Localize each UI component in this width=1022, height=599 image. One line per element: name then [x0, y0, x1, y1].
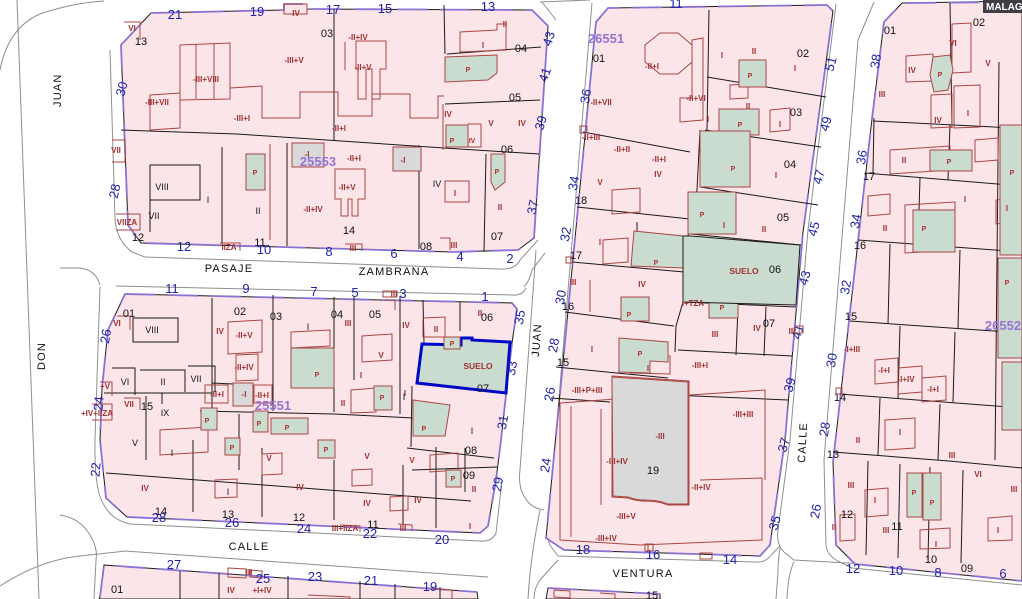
svg-text:8: 8 [325, 244, 332, 259]
svg-text:28: 28 [152, 510, 166, 525]
svg-text:-II+V: -II+V [235, 331, 253, 340]
svg-text:I: I [775, 171, 777, 180]
svg-text:19: 19 [250, 4, 264, 19]
svg-text:04: 04 [515, 43, 527, 55]
svg-text:P: P [947, 159, 952, 166]
svg-text:III: III [879, 90, 886, 99]
svg-text:II: II [478, 309, 482, 318]
svg-text:I: I [360, 371, 362, 380]
svg-text:IV: IV [296, 483, 304, 492]
svg-text:2: 2 [506, 251, 513, 266]
svg-text:V: V [132, 438, 138, 448]
svg-text:JUAN: JUAN [530, 323, 544, 357]
svg-text:11: 11 [891, 521, 902, 533]
svg-text:+V: +V [100, 382, 111, 391]
svg-text:SUELO: SUELO [463, 361, 493, 371]
svg-text:IV: IV [402, 321, 410, 330]
svg-text:I: I [794, 64, 796, 73]
svg-text:-II+I: -II+I [652, 155, 666, 164]
svg-text:07: 07 [477, 383, 489, 395]
svg-text:-III: -III [655, 432, 664, 441]
svg-text:-III+V: -III+V [616, 512, 636, 521]
svg-text:II: II [498, 203, 502, 212]
svg-text:-II+III: -II+III [582, 133, 600, 142]
svg-text:31: 31 [494, 414, 511, 431]
svg-text:VIII: VIII [155, 182, 169, 192]
svg-text:P: P [700, 212, 705, 219]
svg-text:15: 15 [646, 590, 658, 599]
svg-text:IV: IV [414, 496, 422, 505]
svg-text:V: V [985, 59, 991, 68]
svg-text:-I+I: -I+I [878, 366, 890, 375]
svg-text:IV: IV [638, 280, 646, 289]
svg-text:30: 30 [823, 352, 840, 369]
svg-text:P: P [930, 500, 935, 507]
svg-text:P: P [230, 445, 235, 452]
svg-text:1: 1 [481, 289, 488, 304]
svg-text:8: 8 [934, 565, 941, 580]
svg-text:25553: 25553 [300, 154, 336, 169]
svg-text:III: III [848, 481, 855, 490]
svg-text:-II+IV: -II+IV [348, 33, 368, 42]
svg-text:7: 7 [310, 284, 317, 299]
svg-text:33: 33 [503, 360, 520, 377]
svg-text:I: I [171, 448, 174, 458]
svg-text:I: I [227, 487, 230, 497]
svg-text:32: 32 [557, 226, 574, 243]
svg-text:25: 25 [256, 571, 270, 586]
svg-text:02: 02 [797, 48, 809, 60]
svg-text:SUELO: SUELO [729, 266, 759, 276]
svg-text:22: 22 [87, 462, 103, 478]
svg-text:-II+II: -II+II [614, 145, 630, 154]
svg-text:01: 01 [111, 584, 123, 596]
svg-text:IIZA: IIZA [221, 243, 236, 252]
svg-text:P: P [1005, 280, 1010, 287]
svg-text:P: P [720, 305, 725, 312]
svg-text:P: P [638, 351, 643, 358]
svg-text:16: 16 [854, 240, 866, 252]
svg-text:I: I [471, 426, 474, 436]
svg-text:27: 27 [167, 557, 181, 572]
svg-text:15: 15 [378, 1, 392, 16]
svg-text:13: 13 [481, 0, 495, 14]
svg-text:4: 4 [456, 249, 463, 264]
svg-text:18: 18 [575, 195, 587, 207]
svg-text:02: 02 [973, 17, 985, 29]
svg-text:P: P [315, 372, 320, 379]
svg-text:24: 24 [90, 396, 106, 412]
svg-text:MALAGA: MALAGA [986, 2, 1022, 13]
svg-text:P: P [748, 73, 753, 80]
svg-text:26552: 26552 [985, 318, 1021, 333]
svg-text:38: 38 [867, 53, 884, 70]
svg-text:24: 24 [537, 457, 554, 474]
svg-text:I: I [997, 526, 999, 535]
svg-text:VIII: VIII [145, 325, 159, 335]
svg-text:I: I [454, 189, 456, 198]
svg-text:09: 09 [961, 563, 973, 575]
svg-text:-III+P+III: -III+P+III [572, 386, 603, 395]
svg-text:29: 29 [489, 476, 506, 493]
svg-text:5: 5 [351, 285, 358, 300]
svg-text:-II+I: -II+I [332, 124, 346, 133]
svg-text:VI: VI [121, 377, 130, 387]
svg-text:VII: VII [111, 146, 121, 155]
svg-text:14: 14 [343, 225, 355, 237]
svg-text:P: P [922, 226, 927, 233]
svg-text:P: P [1010, 170, 1015, 177]
svg-text:P: P [495, 169, 500, 176]
svg-text:P: P [205, 418, 210, 425]
svg-text:II: II [160, 377, 165, 387]
svg-text:15: 15 [557, 357, 569, 369]
svg-text:-II+I: -II+I [347, 154, 361, 163]
svg-text:-I: -I [401, 156, 406, 165]
svg-text:36: 36 [853, 149, 870, 166]
svg-text:ZAMBRANA: ZAMBRANA [359, 266, 430, 278]
svg-text:34: 34 [565, 175, 582, 192]
svg-text:I: I [874, 496, 876, 505]
svg-text:P: P [253, 170, 258, 177]
svg-text:-II+V: -II+V [354, 63, 372, 72]
svg-text:-II+I: -II+I [210, 390, 224, 399]
svg-text:12: 12 [132, 232, 144, 244]
svg-text:II: II [746, 102, 750, 111]
svg-text:I: I [935, 540, 937, 549]
svg-text:P: P [450, 341, 455, 348]
svg-text:06: 06 [769, 264, 781, 276]
svg-text:III: III [345, 319, 352, 328]
svg-text:I: I [779, 120, 781, 129]
svg-text:I: I [404, 389, 406, 398]
svg-text:6: 6 [390, 246, 397, 261]
svg-text:6: 6 [999, 566, 1006, 581]
svg-text:06: 06 [481, 312, 493, 324]
svg-text:07: 07 [763, 318, 775, 330]
svg-text:26: 26 [541, 386, 558, 403]
svg-text:VI: VI [113, 319, 121, 328]
svg-text:26: 26 [97, 328, 114, 345]
svg-text:III: III [350, 244, 357, 253]
svg-text:10: 10 [889, 563, 903, 578]
svg-text:III: III [712, 330, 719, 339]
svg-text:P: P [422, 426, 427, 433]
svg-text:P: P [654, 260, 659, 267]
svg-text:32: 32 [837, 279, 854, 296]
svg-text:IV: IV [141, 484, 149, 493]
svg-text:III: III [949, 451, 956, 460]
svg-text:21: 21 [168, 7, 182, 22]
svg-text:15: 15 [141, 401, 153, 413]
svg-text:-III+I: -III+I [234, 114, 250, 123]
svg-text:IV: IV [753, 324, 761, 333]
svg-text:V: V [488, 119, 494, 128]
svg-text:-III+VIII: -III+VIII [193, 75, 219, 84]
svg-text:VI: VI [974, 470, 982, 479]
svg-text:12: 12 [177, 239, 191, 254]
svg-text:23: 23 [308, 569, 322, 584]
svg-text:IV: IV [934, 116, 942, 125]
svg-text:22: 22 [363, 526, 377, 541]
svg-text:VIIZA: VIIZA [117, 218, 138, 227]
svg-text:-III+III: -III+III [733, 410, 754, 419]
svg-text:III+IIZA: III+IIZA [332, 524, 359, 533]
svg-text:IV: IV [518, 119, 526, 128]
svg-text:II: II [503, 20, 507, 29]
svg-text:P: P [738, 122, 743, 129]
svg-text:PASAJE: PASAJE [205, 263, 254, 275]
svg-text:IV: IV [469, 138, 476, 145]
svg-text:I: I [599, 238, 601, 247]
svg-text:30: 30 [552, 289, 569, 306]
svg-text:II: II [472, 485, 476, 494]
svg-text:06: 06 [501, 144, 513, 156]
svg-text:I: I [1006, 204, 1008, 213]
svg-text:20: 20 [435, 532, 449, 547]
svg-text:I: I [307, 322, 310, 332]
svg-text:01: 01 [593, 53, 605, 65]
svg-text:17: 17 [326, 2, 340, 17]
svg-text:11: 11 [669, 0, 683, 11]
svg-text:03: 03 [790, 107, 802, 119]
svg-text:14: 14 [723, 552, 737, 567]
svg-text:-II+I: -II+I [645, 62, 659, 71]
svg-text:28: 28 [106, 182, 124, 199]
svg-text:II: II [762, 225, 766, 234]
svg-text:P: P [627, 312, 632, 319]
svg-text:III: III [246, 568, 253, 577]
svg-text:II: II [255, 206, 260, 216]
svg-text:-III+V: -III+V [284, 56, 304, 65]
svg-text:DON: DON [36, 342, 48, 370]
svg-text:26: 26 [225, 515, 239, 530]
svg-text:VII: VII [190, 374, 201, 384]
svg-text:-II+IV: -II+IV [303, 205, 323, 214]
svg-text:19: 19 [423, 579, 437, 594]
svg-text:-I+I: -I+I [927, 385, 939, 394]
svg-text:12: 12 [841, 509, 853, 521]
svg-text:V: V [364, 452, 370, 461]
svg-text:IV: IV [216, 327, 224, 336]
svg-text:01: 01 [123, 308, 135, 320]
svg-text:II: II [883, 224, 887, 233]
svg-text:I+TZA: I+TZA [682, 299, 705, 308]
svg-text:P: P [731, 166, 736, 173]
svg-text:CALLE: CALLE [796, 422, 810, 463]
svg-text:-II+V: -II+V [338, 183, 356, 192]
svg-text:I: I [482, 41, 484, 50]
svg-text:III: III [400, 524, 407, 533]
svg-text:-II+IV: -II+IV [691, 483, 711, 492]
svg-text:05: 05 [509, 92, 521, 104]
svg-text:I: I [899, 428, 901, 437]
svg-text:CALLE: CALLE [229, 541, 270, 553]
svg-text:IV: IV [433, 179, 442, 189]
svg-text:19: 19 [647, 465, 659, 477]
svg-text:II: II [832, 523, 836, 532]
svg-text:P: P [380, 395, 385, 402]
svg-text:P: P [324, 447, 329, 454]
svg-text:I: I [591, 345, 593, 354]
svg-text:II: II [902, 156, 906, 165]
svg-text:17: 17 [863, 171, 875, 183]
svg-text:36: 36 [577, 88, 594, 105]
svg-text:JUAN: JUAN [52, 73, 64, 107]
svg-text:25551: 25551 [255, 398, 291, 413]
svg-text:-II+VI: -II+VI [686, 94, 705, 103]
svg-text:04: 04 [784, 159, 796, 171]
svg-text:VII: VII [148, 211, 159, 221]
svg-text:24: 24 [297, 521, 311, 536]
svg-text:-II+VII: -II+VII [590, 98, 612, 107]
svg-text:15: 15 [845, 311, 857, 323]
svg-text:IV: IV [908, 66, 916, 75]
svg-text:I: I [721, 51, 723, 60]
svg-text:05: 05 [777, 212, 789, 224]
svg-text:IV: IV [444, 110, 452, 119]
svg-text:07: 07 [491, 231, 503, 243]
svg-text:I: I [707, 115, 709, 124]
svg-text:03: 03 [321, 28, 333, 40]
svg-text:II: II [341, 399, 345, 408]
svg-text:09: 09 [463, 470, 475, 482]
svg-text:IV: IV [292, 9, 300, 18]
svg-text:-III+IV: -III+IV [606, 457, 628, 466]
svg-text:P: P [285, 425, 290, 432]
svg-text:V: V [409, 456, 415, 465]
svg-text:III: III [570, 278, 577, 287]
svg-text:II: II [856, 436, 860, 445]
svg-text:02: 02 [234, 306, 246, 318]
svg-text:P: P [450, 138, 455, 145]
svg-text:13: 13 [135, 36, 147, 48]
svg-text:05: 05 [369, 309, 381, 321]
svg-text:35: 35 [511, 309, 528, 326]
svg-text:26: 26 [807, 503, 824, 520]
svg-text:26551: 26551 [588, 31, 624, 46]
svg-text:-I+III: -I+III [844, 345, 860, 354]
svg-text:V: V [378, 351, 384, 360]
svg-text:IX: IX [161, 408, 170, 418]
svg-text:37: 37 [524, 198, 542, 215]
svg-text:+I+IV: +I+IV [252, 586, 272, 595]
svg-text:IV: IV [363, 499, 371, 508]
svg-text:04: 04 [331, 309, 343, 321]
svg-text:08: 08 [420, 241, 432, 253]
svg-text:P: P [938, 72, 943, 79]
svg-text:3: 3 [399, 286, 406, 301]
svg-text:-III+IV: -III+IV [595, 534, 617, 543]
svg-text:V: V [266, 454, 272, 463]
svg-text:12: 12 [846, 561, 860, 576]
svg-text:I: I [469, 522, 471, 531]
svg-text:III: III [883, 526, 890, 535]
svg-text:08: 08 [465, 445, 477, 457]
svg-text:34: 34 [847, 213, 864, 230]
svg-text:I: I [647, 364, 649, 373]
svg-text:P: P [451, 476, 456, 483]
svg-text:-III+VII: -III+VII [145, 98, 169, 107]
svg-text:28: 28 [545, 337, 562, 354]
svg-text:P: P [912, 490, 917, 497]
svg-text:VENTURA: VENTURA [613, 568, 674, 580]
svg-text:01: 01 [884, 25, 896, 37]
svg-text:P: P [257, 421, 262, 428]
svg-text:18: 18 [576, 542, 590, 557]
svg-text:II: II [752, 47, 756, 56]
svg-text:10: 10 [257, 242, 271, 257]
svg-text:III: III [1011, 485, 1018, 494]
svg-text:I: I [207, 195, 210, 205]
svg-text:I: I [967, 109, 969, 118]
svg-text:13: 13 [827, 449, 839, 461]
svg-text:-II+IV: -II+IV [234, 363, 254, 372]
svg-text:IV: IV [654, 170, 662, 179]
svg-text:V: V [597, 178, 603, 187]
svg-text:P: P [466, 67, 471, 74]
svg-text:II: II [434, 325, 438, 334]
svg-text:11: 11 [165, 281, 179, 296]
svg-text:VI: VI [949, 39, 957, 48]
svg-text:-III+I: -III+I [692, 361, 708, 370]
svg-text:28: 28 [816, 421, 833, 438]
svg-text:I: I [723, 221, 725, 230]
svg-text:VI: VI [128, 24, 136, 33]
svg-text:I: I [964, 195, 966, 204]
svg-text:IV: IV [227, 586, 235, 595]
svg-text:VII: VII [124, 400, 134, 409]
svg-text:21: 21 [364, 573, 378, 588]
svg-text:-I+IV: -I+IV [897, 375, 915, 384]
svg-text:-I: -I [242, 390, 247, 399]
svg-text:03: 03 [270, 311, 282, 323]
svg-text:9: 9 [242, 281, 249, 296]
